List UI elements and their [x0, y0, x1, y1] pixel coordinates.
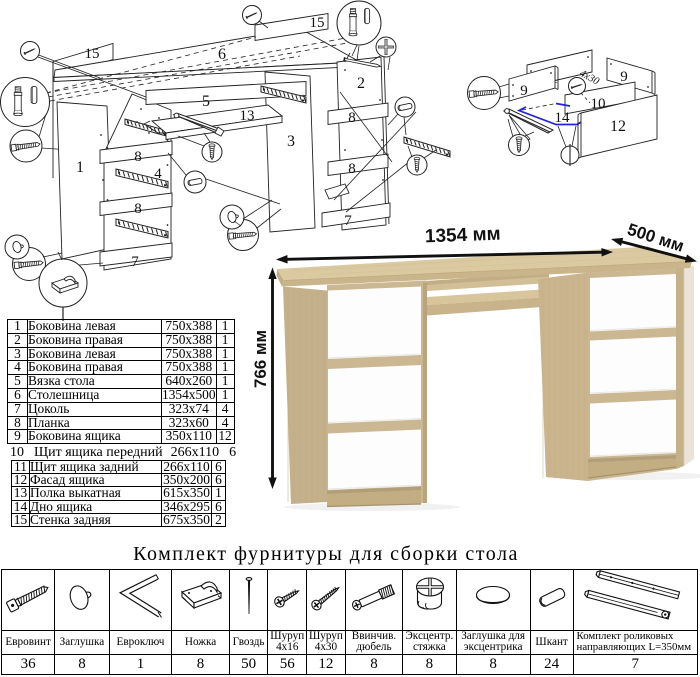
svg-text:9: 9	[620, 69, 628, 85]
svg-text:8: 8	[348, 161, 356, 177]
svg-text:1: 1	[76, 159, 84, 176]
svg-text:7: 7	[344, 213, 352, 229]
svg-text:14: 14	[555, 110, 571, 126]
svg-text:12: 12	[610, 118, 626, 135]
svg-text:9: 9	[520, 83, 528, 99]
svg-text:15: 15	[310, 15, 325, 31]
svg-text:8: 8	[134, 201, 142, 217]
svg-text:5: 5	[202, 93, 210, 110]
svg-text:7: 7	[131, 254, 139, 270]
svg-text:1354 мм: 1354 мм	[425, 224, 501, 248]
svg-text:13: 13	[240, 108, 255, 124]
svg-text:3: 3	[287, 133, 295, 150]
svg-text:8: 8	[134, 149, 142, 165]
svg-text:766 мм: 766 мм	[251, 330, 270, 388]
svg-text:15: 15	[85, 46, 100, 62]
svg-text:8: 8	[348, 110, 356, 126]
svg-text:2: 2	[357, 75, 365, 92]
